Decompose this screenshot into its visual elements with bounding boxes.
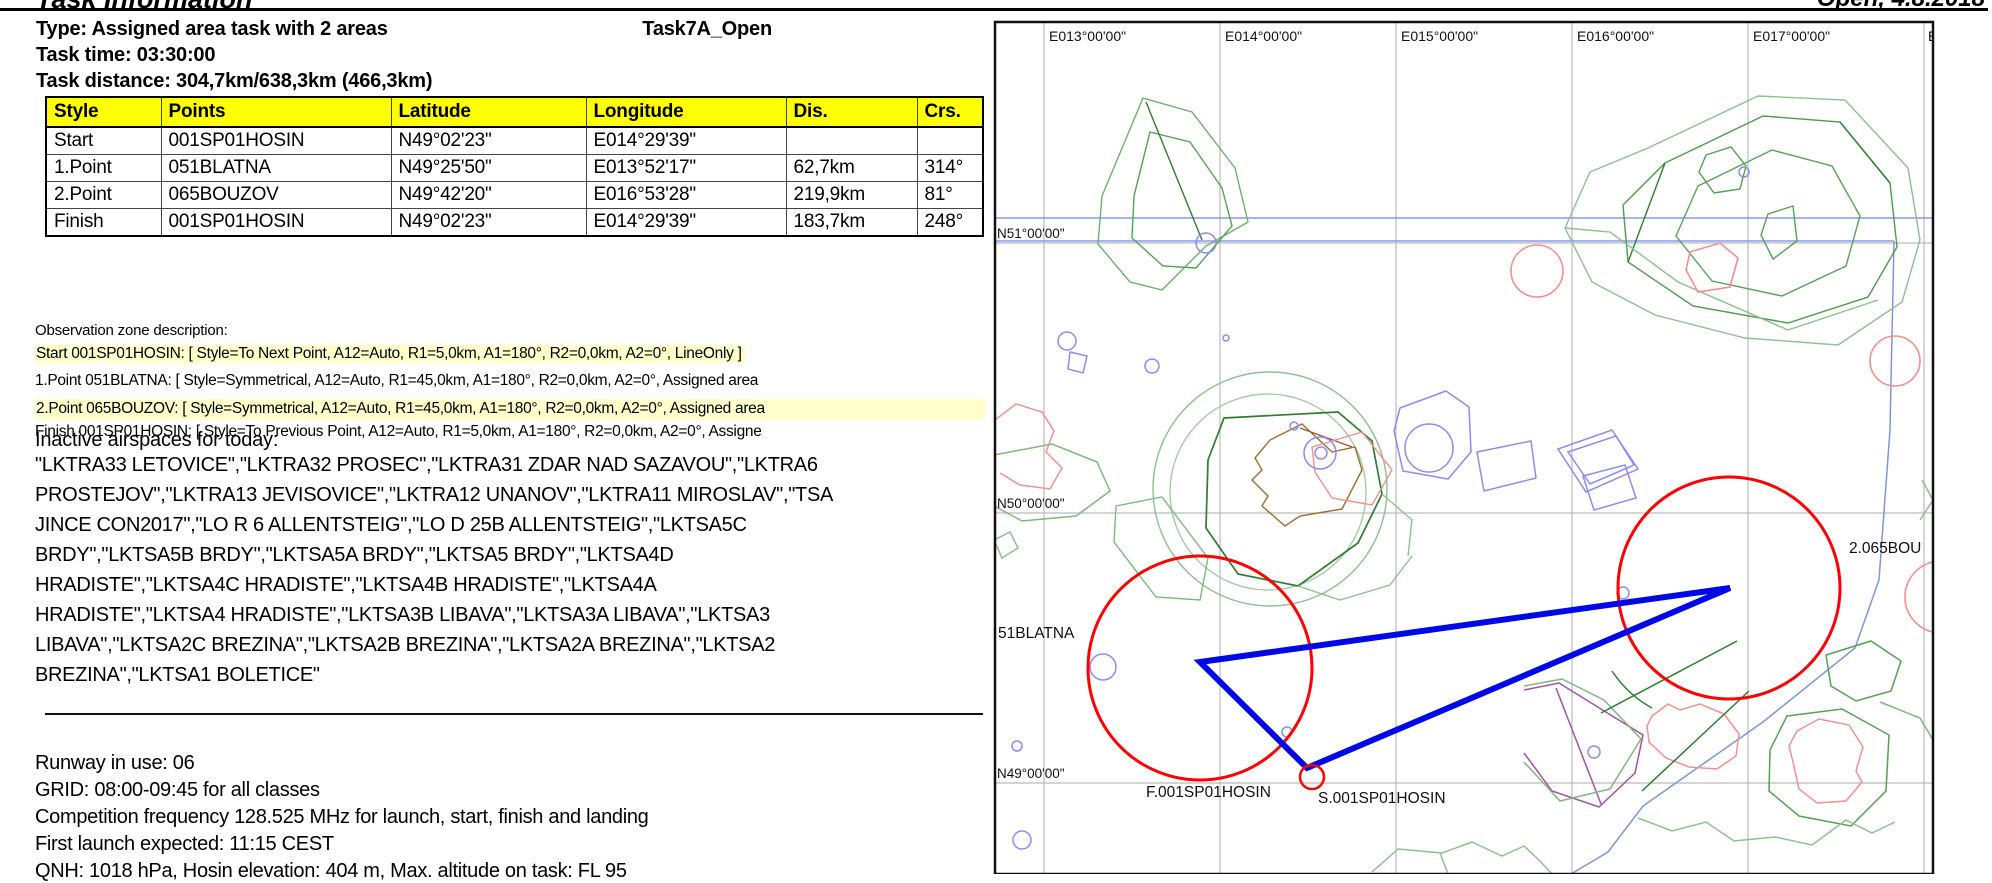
latitude-labels: N51°00'00" N50°00'00" N49°00'00" [997, 226, 1065, 781]
longitude-labels: E013°00'00" E014°00'00" E015°00'00" E016… [1049, 28, 1937, 44]
waypoint-labels: 51BLATNA 2.065BOU F.001SP01HOSIN S.001SP… [998, 540, 1921, 807]
observation-zone-circles [1088, 477, 1840, 780]
airspace-brown-polygon [1252, 424, 1362, 526]
map-graticule [996, 23, 1932, 874]
map-border [995, 22, 1933, 874]
task-map: E013°00'00" E014°00'00" E015°00'00" E016… [0, 0, 1992, 874]
label-bouzov: 2.065BOU [1849, 540, 1921, 557]
svg-text:N50°00'00": N50°00'00" [997, 496, 1065, 511]
svg-text:N49°00'00": N49°00'00" [997, 766, 1065, 781]
airspace-red-small [1511, 243, 1977, 633]
svg-text:E014°00'00": E014°00'00" [1225, 28, 1302, 44]
task-track [1200, 588, 1730, 768]
airspace-green-topleft [1098, 98, 1248, 290]
label-finish: F.001SP01HOSIN [1146, 784, 1271, 801]
svg-text:N51°00'00": N51°00'00" [997, 226, 1065, 241]
label-blatna: 51BLATNA [998, 625, 1075, 642]
airspace-blue-wireframes [1394, 391, 1638, 510]
airspace-green-topright [1565, 96, 1920, 345]
svg-text:E017°00'00": E017°00'00" [1753, 28, 1830, 44]
zone-circle-blatna [1088, 556, 1312, 780]
airspace-left-edge [994, 404, 1110, 558]
svg-text:E016°00'00": E016°00'00" [1577, 28, 1654, 44]
airspace-center-cluster [1114, 372, 1412, 606]
label-start: S.001SP01HOSIN [1318, 790, 1446, 807]
svg-text:E015°00'00": E015°00'00" [1401, 28, 1478, 44]
airspace-boundary-blue-lines [996, 218, 1932, 874]
svg-text:E013°00'00": E013°00'00" [1049, 28, 1126, 44]
